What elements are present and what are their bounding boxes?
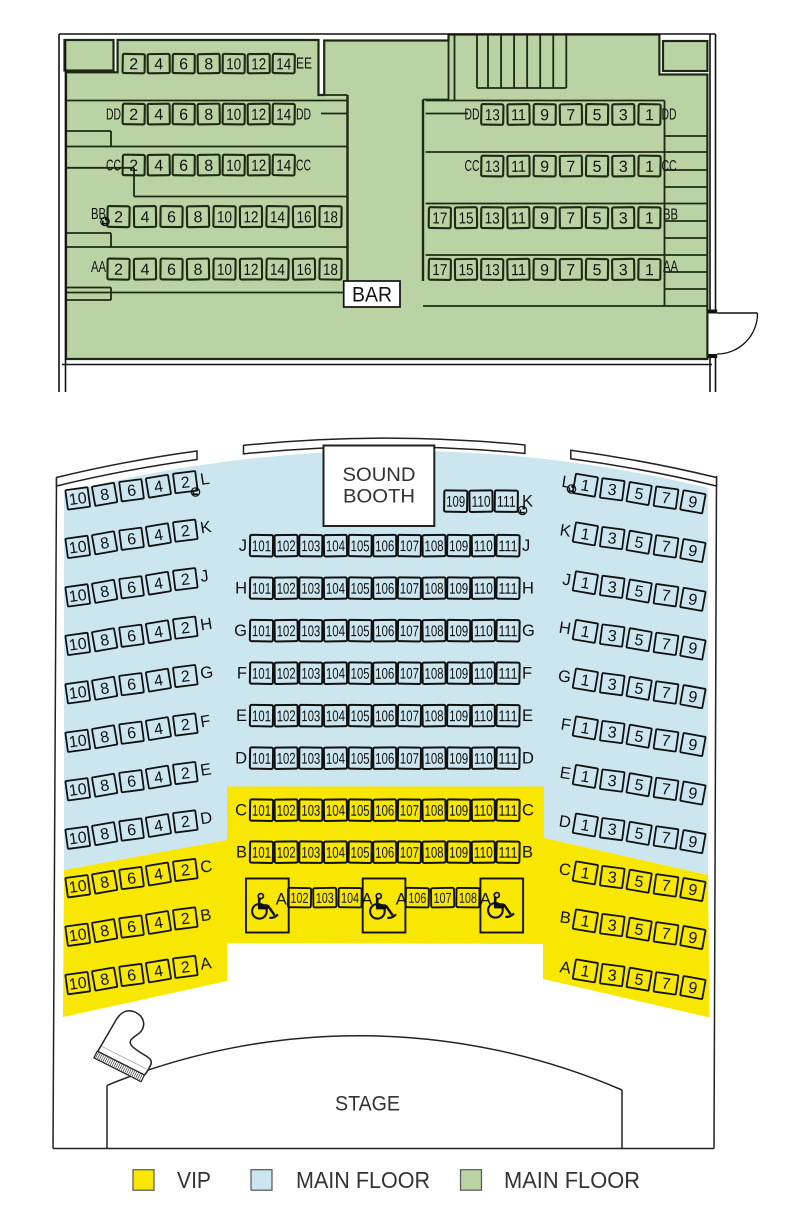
svg-text:17: 17 — [432, 210, 447, 227]
svg-text:5: 5 — [593, 107, 602, 124]
svg-text:13: 13 — [485, 159, 500, 176]
svg-text:111: 111 — [498, 581, 517, 598]
svg-text:11: 11 — [511, 107, 526, 124]
svg-text:106: 106 — [375, 803, 394, 820]
svg-text:J: J — [522, 537, 530, 555]
svg-text:101: 101 — [252, 708, 271, 725]
svg-text:3: 3 — [619, 262, 628, 279]
svg-text:7: 7 — [566, 107, 575, 124]
svg-text:DD: DD — [106, 107, 121, 124]
svg-text:106: 106 — [375, 666, 394, 683]
svg-text:CC: CC — [296, 158, 311, 175]
svg-text:110: 110 — [474, 581, 493, 598]
svg-text:C: C — [235, 802, 247, 820]
svg-text:12: 12 — [243, 209, 258, 226]
svg-text:8: 8 — [193, 262, 202, 279]
svg-text:8: 8 — [204, 56, 213, 73]
svg-text:7: 7 — [566, 210, 575, 227]
svg-text:18: 18 — [323, 262, 338, 279]
svg-text:111: 111 — [498, 708, 517, 725]
svg-text:109: 109 — [449, 845, 468, 862]
svg-text:4: 4 — [140, 209, 149, 226]
svg-text:104: 104 — [326, 623, 346, 640]
svg-text:107: 107 — [400, 666, 419, 683]
svg-text:9: 9 — [540, 159, 549, 176]
svg-text:104: 104 — [326, 581, 346, 598]
svg-text:110: 110 — [474, 751, 493, 768]
svg-text:E: E — [236, 707, 247, 725]
svg-text:109: 109 — [449, 623, 468, 640]
svg-text:1: 1 — [645, 262, 654, 279]
svg-text:7: 7 — [566, 159, 575, 176]
svg-text:110: 110 — [474, 708, 493, 725]
svg-text:103: 103 — [301, 803, 320, 820]
svg-text:18: 18 — [323, 209, 338, 226]
svg-text:15: 15 — [458, 210, 473, 227]
svg-text:A: A — [276, 891, 287, 909]
svg-text:D: D — [235, 750, 247, 768]
svg-text:9: 9 — [540, 107, 549, 124]
svg-text:109: 109 — [449, 751, 468, 768]
svg-text:111: 111 — [498, 803, 517, 820]
svg-text:H: H — [522, 580, 534, 598]
svg-text:101: 101 — [252, 666, 271, 683]
svg-text:14: 14 — [276, 56, 291, 73]
svg-text:104: 104 — [326, 803, 346, 820]
svg-text:106: 106 — [408, 891, 426, 907]
svg-text:G: G — [234, 622, 247, 640]
svg-text:101: 101 — [252, 751, 271, 768]
svg-text:8: 8 — [193, 209, 202, 226]
svg-text:103: 103 — [316, 891, 334, 907]
svg-text:BOOTH: BOOTH — [343, 486, 415, 508]
svg-text:106: 106 — [375, 538, 394, 555]
svg-text:13: 13 — [485, 210, 500, 227]
svg-text:111: 111 — [498, 666, 517, 683]
svg-text:102: 102 — [277, 803, 296, 820]
svg-text:E: E — [522, 707, 533, 725]
svg-text:110: 110 — [471, 494, 491, 511]
svg-text:107: 107 — [400, 623, 419, 640]
svg-text:108: 108 — [424, 845, 443, 862]
svg-text:105: 105 — [350, 581, 369, 598]
svg-text:101: 101 — [252, 845, 271, 862]
svg-text:10: 10 — [68, 635, 88, 654]
svg-text:108: 108 — [424, 708, 443, 725]
svg-text:10: 10 — [68, 587, 88, 606]
svg-text:102: 102 — [290, 891, 308, 907]
svg-text:12: 12 — [251, 56, 266, 73]
svg-text:105: 105 — [350, 845, 369, 862]
svg-text:SOUND: SOUND — [343, 464, 416, 486]
svg-text:14: 14 — [276, 107, 291, 124]
svg-text:15: 15 — [458, 262, 473, 279]
svg-text:11: 11 — [511, 159, 526, 176]
svg-text:102: 102 — [277, 538, 296, 555]
svg-text:11: 11 — [511, 262, 526, 279]
svg-text:101: 101 — [252, 803, 271, 820]
svg-text:108: 108 — [424, 623, 443, 640]
svg-text:107: 107 — [400, 538, 419, 555]
svg-text:103: 103 — [301, 623, 320, 640]
svg-text:4: 4 — [154, 56, 163, 73]
svg-text:5: 5 — [592, 210, 601, 227]
svg-text:10: 10 — [226, 107, 241, 124]
svg-text:110: 110 — [474, 538, 493, 555]
svg-text:101: 101 — [252, 581, 271, 598]
svg-text:B: B — [236, 844, 247, 862]
svg-text:106: 106 — [375, 623, 394, 640]
svg-text:AA: AA — [91, 259, 106, 276]
svg-text:2: 2 — [129, 158, 138, 175]
svg-text:BB: BB — [663, 207, 678, 224]
svg-text:STAGE: STAGE — [335, 1093, 400, 1116]
svg-text:108: 108 — [424, 581, 443, 598]
svg-text:BB: BB — [91, 206, 106, 223]
svg-text:111: 111 — [497, 494, 516, 511]
svg-text:C: C — [522, 802, 534, 820]
svg-text:12: 12 — [243, 262, 258, 279]
svg-text:G: G — [199, 663, 214, 683]
svg-text:104: 104 — [326, 538, 346, 555]
svg-text:6: 6 — [179, 158, 188, 175]
svg-text:104: 104 — [326, 751, 346, 768]
svg-text:11: 11 — [511, 210, 526, 227]
svg-text:10: 10 — [68, 975, 88, 994]
svg-text:9: 9 — [540, 210, 549, 227]
svg-text:102: 102 — [277, 581, 296, 598]
svg-text:10: 10 — [68, 490, 88, 509]
svg-text:17: 17 — [432, 262, 447, 279]
svg-text:101: 101 — [252, 623, 271, 640]
svg-text:102: 102 — [277, 623, 296, 640]
svg-text:109: 109 — [449, 581, 468, 598]
svg-text:VIP: VIP — [177, 1167, 211, 1193]
svg-text:14: 14 — [270, 209, 285, 226]
svg-text:104: 104 — [341, 891, 359, 907]
svg-text:107: 107 — [400, 581, 419, 598]
svg-text:4: 4 — [154, 107, 163, 124]
svg-text:109: 109 — [449, 803, 468, 820]
svg-text:AA: AA — [663, 259, 678, 276]
svg-text:103: 103 — [301, 845, 320, 862]
svg-text:111: 111 — [498, 538, 517, 555]
svg-text:9: 9 — [540, 262, 549, 279]
svg-text:1: 1 — [645, 159, 654, 176]
svg-text:10: 10 — [217, 209, 232, 226]
svg-text:109: 109 — [449, 708, 468, 725]
svg-text:14: 14 — [270, 262, 285, 279]
svg-text:10: 10 — [226, 158, 241, 175]
svg-text:10: 10 — [68, 829, 88, 848]
svg-text:H: H — [235, 580, 247, 598]
svg-text:111: 111 — [498, 845, 517, 862]
svg-text:6: 6 — [179, 56, 188, 73]
svg-text:110: 110 — [474, 845, 493, 862]
svg-text:J: J — [239, 537, 247, 555]
svg-text:G: G — [557, 667, 572, 687]
svg-text:BAR: BAR — [352, 283, 392, 307]
svg-text:103: 103 — [301, 666, 320, 683]
svg-text:107: 107 — [400, 708, 419, 725]
svg-text:108: 108 — [459, 891, 477, 907]
svg-text:2: 2 — [129, 107, 138, 124]
svg-text:104: 104 — [326, 666, 346, 683]
svg-text:10: 10 — [68, 538, 88, 557]
svg-text:107: 107 — [434, 891, 452, 907]
svg-text:110: 110 — [474, 803, 493, 820]
svg-text:105: 105 — [350, 803, 369, 820]
svg-text:107: 107 — [400, 803, 419, 820]
svg-text:16: 16 — [296, 209, 311, 226]
svg-text:2: 2 — [114, 262, 123, 279]
svg-text:8: 8 — [204, 158, 213, 175]
svg-text:102: 102 — [277, 751, 296, 768]
svg-text:111: 111 — [498, 751, 517, 768]
svg-text:111: 111 — [498, 623, 517, 640]
svg-text:109: 109 — [449, 666, 468, 683]
svg-text:105: 105 — [350, 538, 369, 555]
svg-text:104: 104 — [326, 845, 346, 862]
svg-text:108: 108 — [424, 538, 443, 555]
svg-text:104: 104 — [326, 708, 346, 725]
svg-text:10: 10 — [68, 732, 88, 751]
svg-text:103: 103 — [301, 708, 320, 725]
svg-text:107: 107 — [400, 751, 419, 768]
svg-text:106: 106 — [375, 751, 394, 768]
svg-text:102: 102 — [277, 708, 296, 725]
svg-text:105: 105 — [350, 666, 369, 683]
svg-text:D: D — [522, 750, 534, 768]
svg-text:16: 16 — [296, 262, 311, 279]
svg-text:105: 105 — [350, 751, 369, 768]
svg-text:1: 1 — [645, 210, 654, 227]
svg-text:EE: EE — [296, 56, 312, 73]
svg-text:13: 13 — [485, 262, 500, 279]
svg-text:5: 5 — [592, 262, 601, 279]
svg-text:10: 10 — [68, 684, 88, 703]
svg-text:108: 108 — [424, 803, 443, 820]
svg-text:106: 106 — [375, 708, 394, 725]
svg-text:10: 10 — [226, 56, 241, 73]
svg-text:109: 109 — [449, 538, 468, 555]
svg-text:5: 5 — [593, 159, 602, 176]
svg-text:12: 12 — [251, 158, 266, 175]
svg-text:103: 103 — [301, 751, 320, 768]
svg-text:1: 1 — [645, 107, 654, 124]
svg-text:4: 4 — [154, 158, 163, 175]
svg-text:3: 3 — [619, 159, 628, 176]
svg-text:103: 103 — [301, 538, 320, 555]
svg-text:MAIN FLOOR: MAIN FLOOR — [504, 1167, 640, 1193]
svg-text:CC: CC — [465, 158, 480, 175]
svg-text:106: 106 — [375, 845, 394, 862]
svg-text:DD: DD — [296, 107, 311, 124]
svg-text:105: 105 — [350, 623, 369, 640]
svg-text:2: 2 — [114, 209, 123, 226]
svg-text:108: 108 — [424, 751, 443, 768]
svg-text:CC: CC — [662, 158, 677, 175]
svg-text:3: 3 — [619, 107, 628, 124]
svg-text:B: B — [522, 844, 533, 862]
svg-text:12: 12 — [251, 107, 266, 124]
svg-text:10: 10 — [68, 781, 88, 800]
svg-text:7: 7 — [566, 262, 575, 279]
svg-text:MAIN FLOOR: MAIN FLOOR — [296, 1167, 430, 1193]
svg-text:102: 102 — [277, 666, 296, 683]
svg-text:14: 14 — [276, 158, 291, 175]
svg-text:102: 102 — [277, 845, 296, 862]
svg-text:8: 8 — [204, 107, 213, 124]
svg-text:105: 105 — [350, 708, 369, 725]
svg-text:106: 106 — [375, 581, 394, 598]
svg-text:G: G — [522, 622, 535, 640]
svg-text:103: 103 — [301, 581, 320, 598]
svg-text:101: 101 — [252, 538, 271, 555]
svg-text:DD: DD — [662, 107, 677, 124]
svg-text:6: 6 — [167, 262, 176, 279]
svg-text:107: 107 — [400, 845, 419, 862]
svg-text:10: 10 — [217, 262, 232, 279]
svg-text:10: 10 — [68, 878, 88, 897]
svg-text:6: 6 — [179, 107, 188, 124]
svg-text:110: 110 — [474, 666, 493, 683]
svg-text:6: 6 — [167, 209, 176, 226]
svg-text:CC: CC — [106, 158, 121, 175]
svg-text:10: 10 — [68, 926, 88, 945]
svg-text:4: 4 — [140, 262, 149, 279]
svg-text:2: 2 — [129, 56, 138, 73]
svg-text:F: F — [522, 665, 532, 683]
svg-text:108: 108 — [424, 666, 443, 683]
svg-text:3: 3 — [619, 210, 628, 227]
svg-text:110: 110 — [474, 623, 493, 640]
svg-text:109: 109 — [446, 494, 465, 511]
svg-text:13: 13 — [485, 107, 500, 124]
svg-text:DD: DD — [465, 107, 480, 124]
svg-text:F: F — [237, 665, 247, 683]
